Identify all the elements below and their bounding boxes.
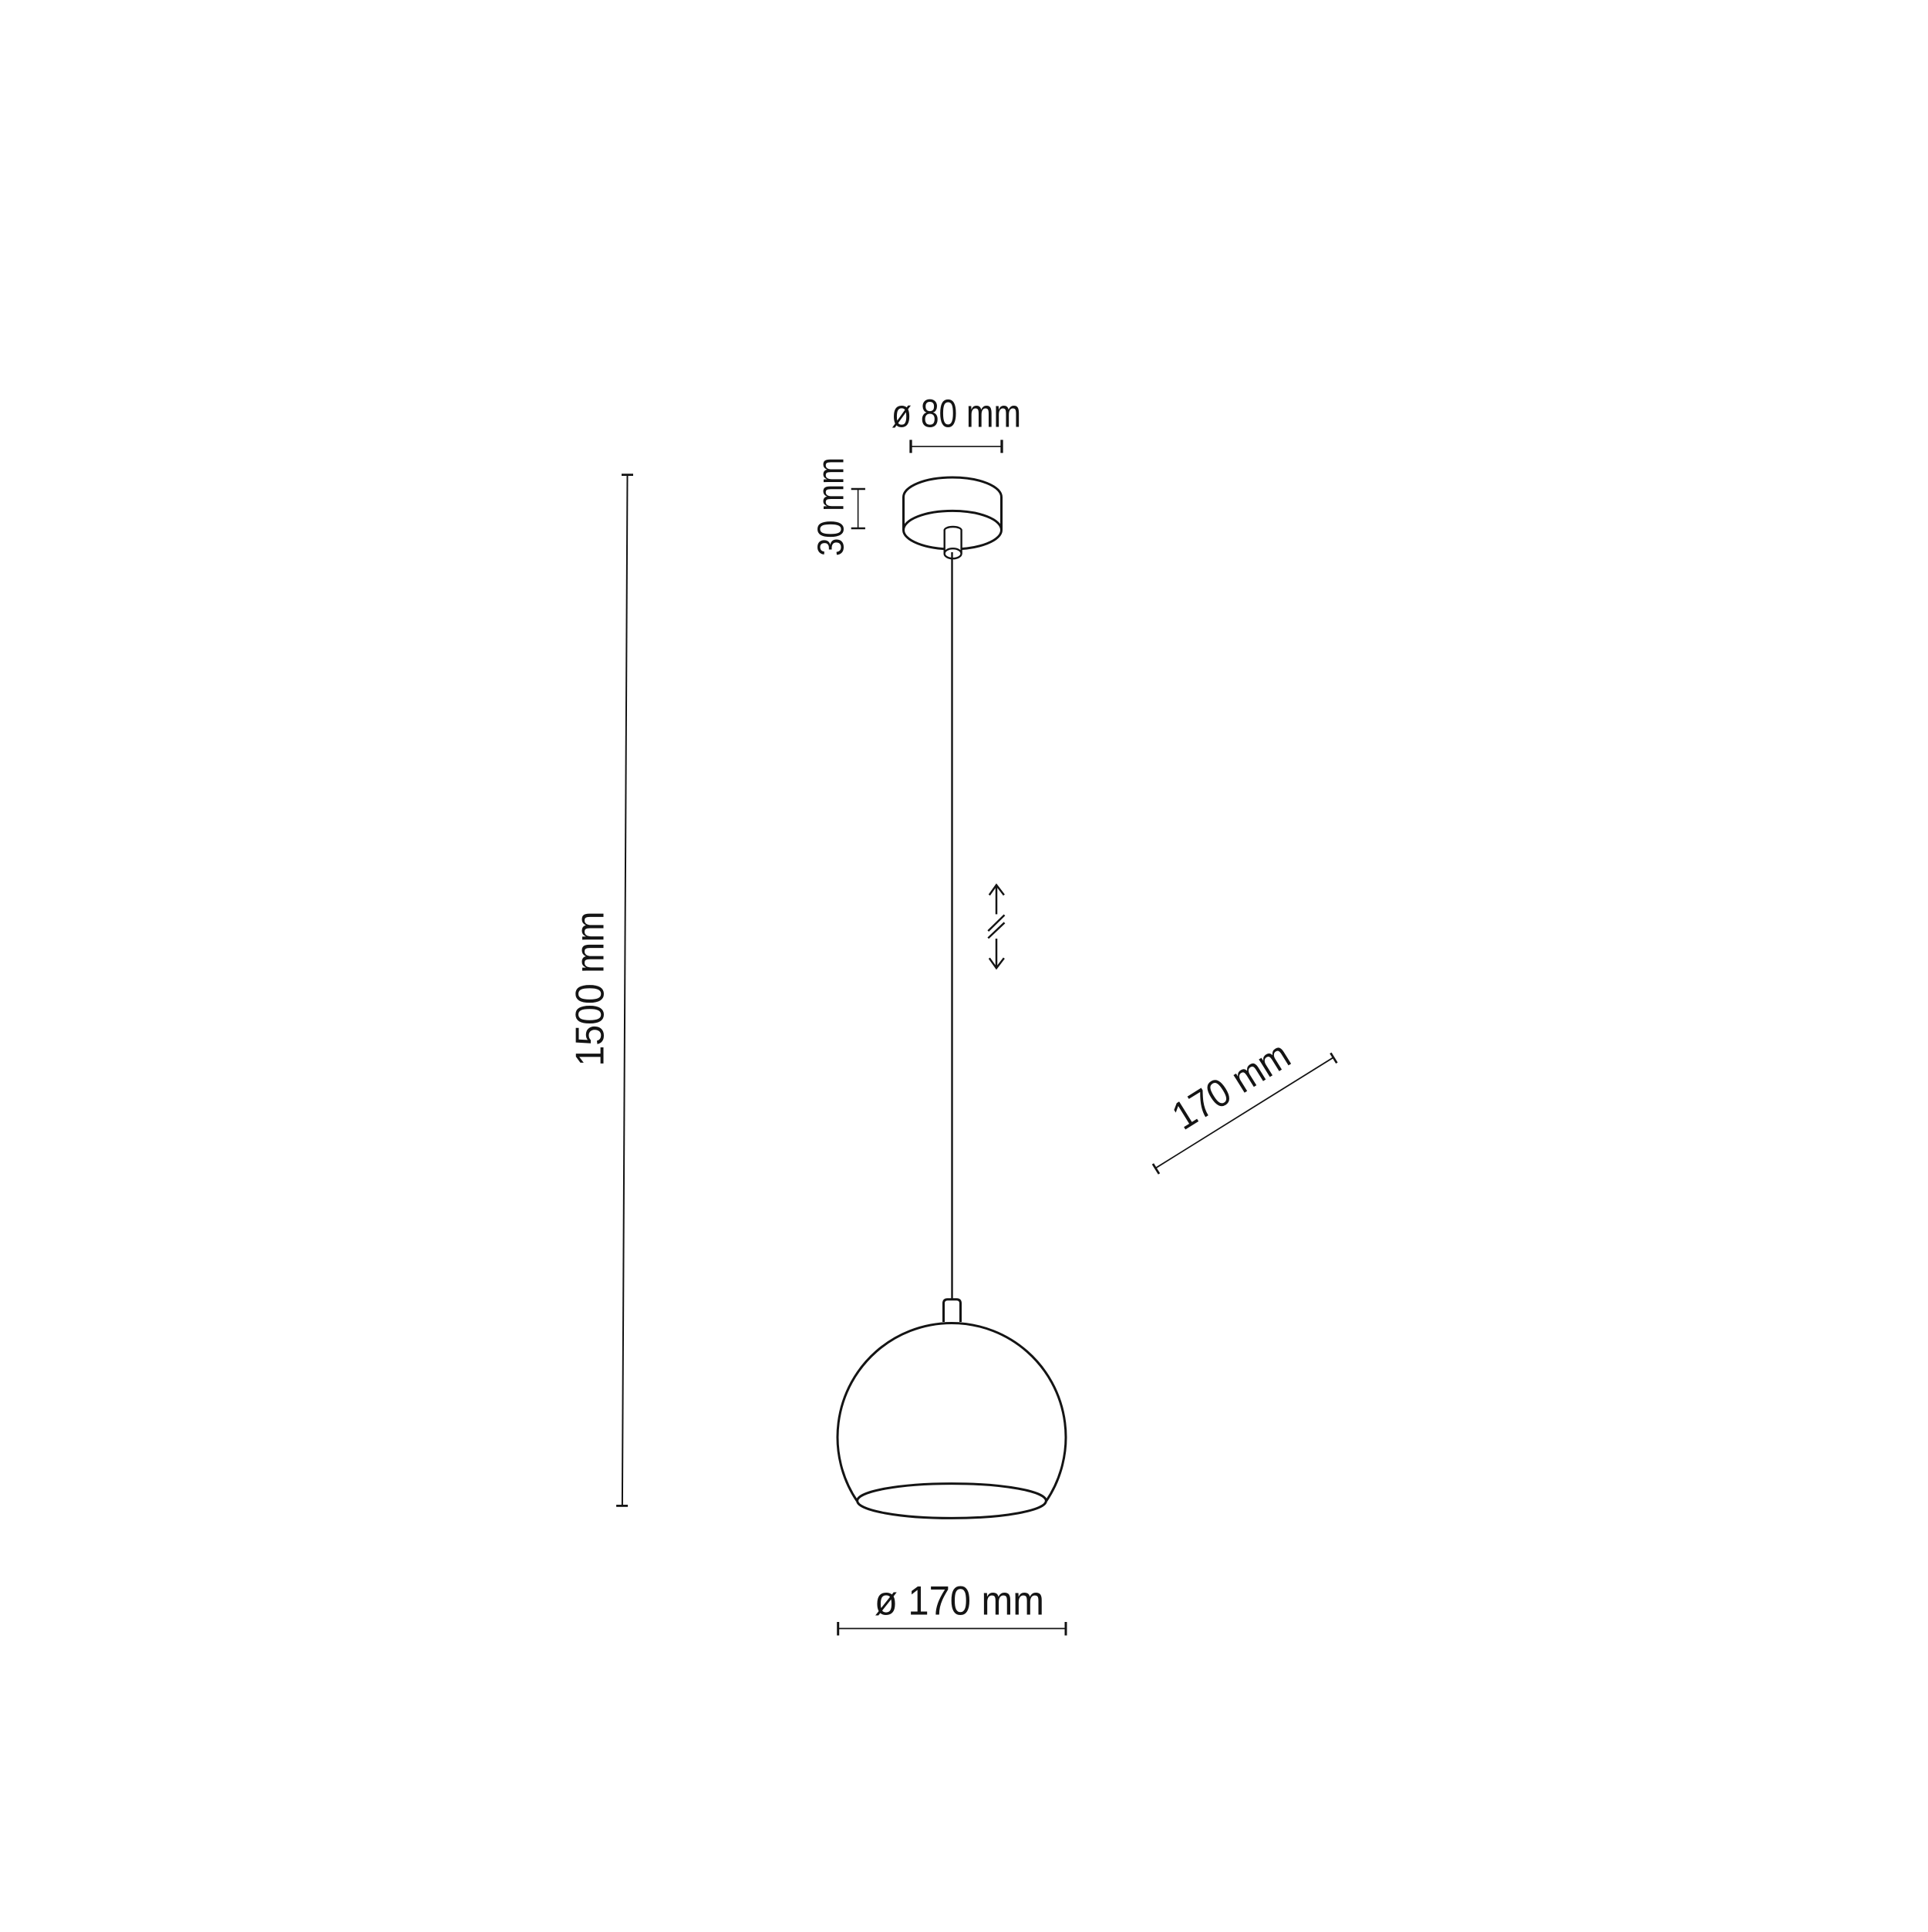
svg-text:30 mm: 30 mm	[811, 457, 852, 556]
svg-text:ø 80 mm: ø 80 mm	[892, 392, 1021, 436]
svg-text:ø 170 mm: ø 170 mm	[875, 1579, 1044, 1624]
svg-text:1500 mm: 1500 mm	[568, 912, 613, 1067]
